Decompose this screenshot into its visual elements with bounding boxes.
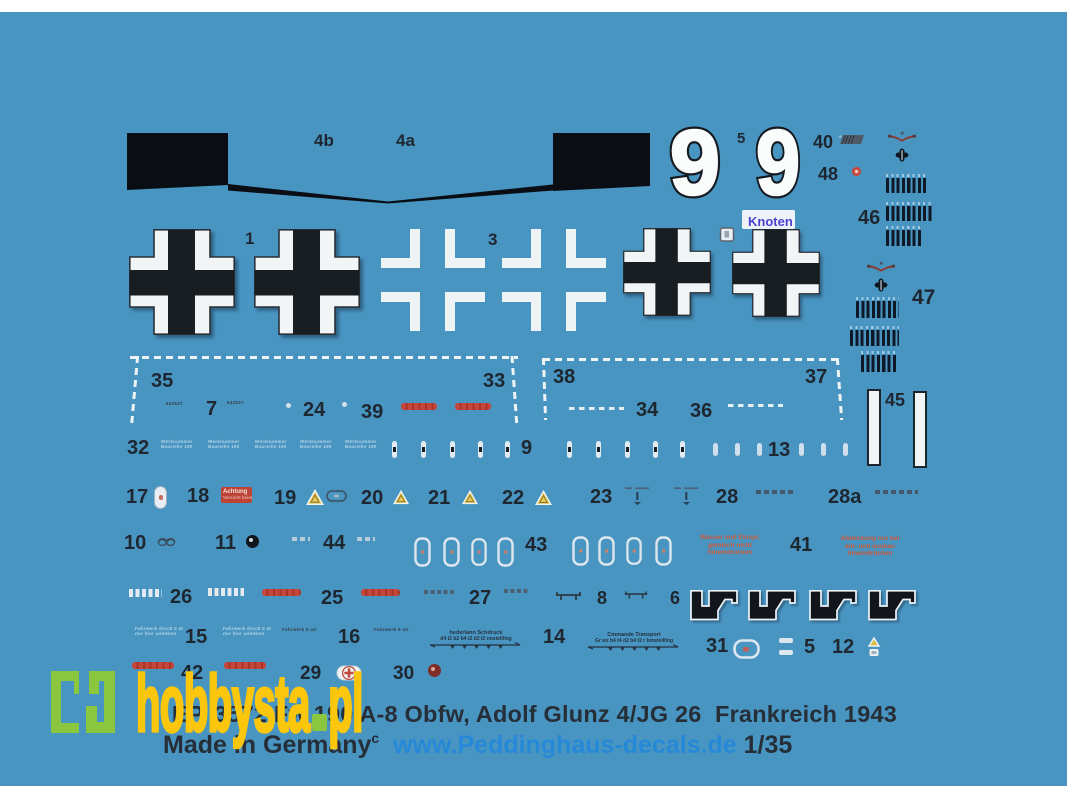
svg-text:9: 9 (756, 120, 800, 200)
svg-text:9: 9 (670, 120, 720, 200)
svg-text:d4 t2 b2 b4 t2 d2 t2 nnstellll: d4 t2 b2 b4 t2 d2 t2 nnstellllng (440, 636, 511, 642)
svg-text:Gr wz b4 t4 d2 b4 t2 r bmstell: Gr wz b4 t4 d2 b4 t2 r bmstellllng (595, 638, 673, 644)
